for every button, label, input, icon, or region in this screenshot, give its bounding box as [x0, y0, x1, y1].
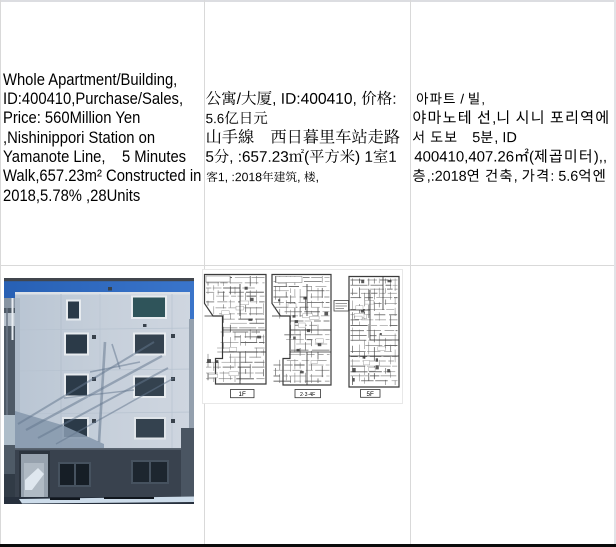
svg-text:5F: 5F	[367, 391, 375, 398]
svg-text:2·3·4F: 2·3·4F	[300, 392, 315, 398]
svg-text:1F: 1F	[239, 391, 247, 398]
